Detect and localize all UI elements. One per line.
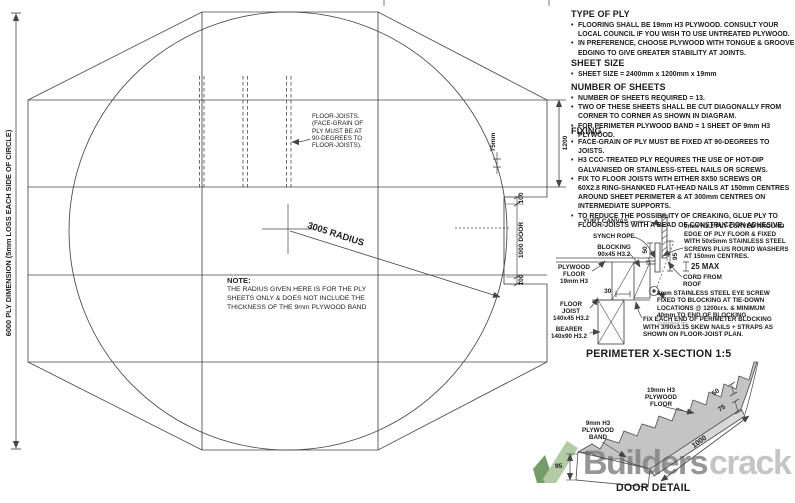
watermark-text-light: crack [709, 444, 792, 482]
plan-dim-door-top-100: 100 [518, 188, 525, 208]
spec-bullet: FLOORING SHALL BE 19mm H3 PLYWOOD. CONSU… [571, 21, 795, 39]
spec-heading: FIXING [571, 126, 795, 136]
watermark: Builders crack [533, 441, 792, 483]
xsection-floor-joist-label: FLOOR JOIST 140x45 H3.2 [552, 301, 590, 323]
xsection-eye-screw-note-text: 8mm STAINLESS STEEL EYE SCREW FIXED TO B… [657, 290, 770, 319]
plan-note-body: THE RADIUS GIVEN HERE IS FOR THE PLY SHE… [227, 285, 367, 312]
door-dim-95: 95 [555, 463, 562, 470]
xsection-dim-25-max: 25 MAX [691, 262, 719, 271]
plan-linework [11, 0, 566, 450]
plan-floor-joists-note: FLOOR-JOISTS. (FACE-GRAIN OF PLY MUST BE… [312, 113, 372, 149]
xsection-blocking-label: BLOCKING 90x45 H3.2 [592, 244, 636, 258]
door-floor-label: 19mm H3 PLYWOOD FLOOR [641, 387, 681, 409]
spec-heading: SHEET SIZE [571, 58, 795, 68]
spec-bullet: TWO OF THESE SHEETS SHALL BE CUT DIAGONA… [571, 103, 795, 121]
xsection-cord-label: CORD FROM ROOF [683, 274, 735, 288]
spec-bullet: H3 CCC-TREATED PLY REQUIRES THE USE OF H… [571, 156, 795, 174]
door-band-label: 9mm H3 PLYWOOD BAND [580, 420, 616, 442]
spec-bullet: FACE-GRAIN OF PLY MUST BE FIXED AT 90-DE… [571, 138, 795, 156]
plan-overall-dimension-label: 6000 PLY DIMENSION (5mm LOSS EACH SIDE O… [4, 3, 13, 463]
spec-bullet: NUMBER OF SHEETS REQUIRED = 13. [571, 94, 795, 103]
door-detail-title: DOOR DETAIL [616, 482, 690, 494]
spec-heading: NUMBER OF SHEETS [571, 82, 795, 92]
xsection-title: PERIMETER X-SECTION 1:5 [586, 348, 731, 360]
plan-note-title: NOTE: [227, 276, 367, 285]
xsection-fix-note: FIX EACH END OF PERIMETER BLOCKING WITH … [643, 316, 795, 339]
plan-note: NOTE: THE RADIUS GIVEN HERE IS FOR THE P… [227, 276, 367, 312]
xsection-dim-50: 50 [642, 242, 649, 258]
plan-dim-75mm: 75mm [490, 129, 497, 155]
spec-section-type-of-ply: TYPE OF PLY FLOORING SHALL BE 19mm H3 PL… [571, 9, 795, 58]
xsection-band-note: 9mm H3.2 PLY CURVED AROUND EDGE OF PLY F… [684, 223, 795, 261]
builderscrack-logo-light [543, 441, 578, 483]
floor-joist-dashed-lines [200, 76, 292, 189]
xsection-bearer-label: BEARER 140x90 H3.2 [549, 326, 589, 340]
xsection-yurt-canvas-label: YURT CANVAS [583, 218, 628, 225]
spec-bullet: IN PREFERENCE, CHOOSE PLYWOOD WITH TONGU… [571, 39, 795, 57]
plan-dim-door-bottom-100: 100 [518, 270, 525, 290]
drawing-sheet: Builders crack [0, 0, 795, 503]
xsection-dim-95: 95 [672, 241, 679, 272]
plan-dim-1000-door: 1000 DOOR [518, 216, 525, 264]
xsection-synch-rope-label: SYNCH ROPE [593, 233, 635, 240]
spec-heading: TYPE OF PLY [571, 9, 795, 19]
xsection-dim-30: 30 [604, 288, 611, 295]
xsection-plywood-floor-label: PLYWOOD FLOOR 19mm H3 [556, 264, 592, 286]
spec-section-fixing: FIXING FACE-GRAIN OF PLY MUST BE FIXED A… [571, 126, 795, 230]
spec-bullet: SHEET SIZE = 2400mm x 1200mm x 19mm [571, 70, 795, 79]
spec-bullet: FIX TO FLOOR JOISTS WITH EITHER 8X50 SCR… [571, 175, 795, 212]
plan-dim-1200: 1200 [562, 112, 569, 174]
spec-section-sheet-size: SHEET SIZE SHEET SIZE = 2400mm x 1200mm … [571, 58, 795, 79]
